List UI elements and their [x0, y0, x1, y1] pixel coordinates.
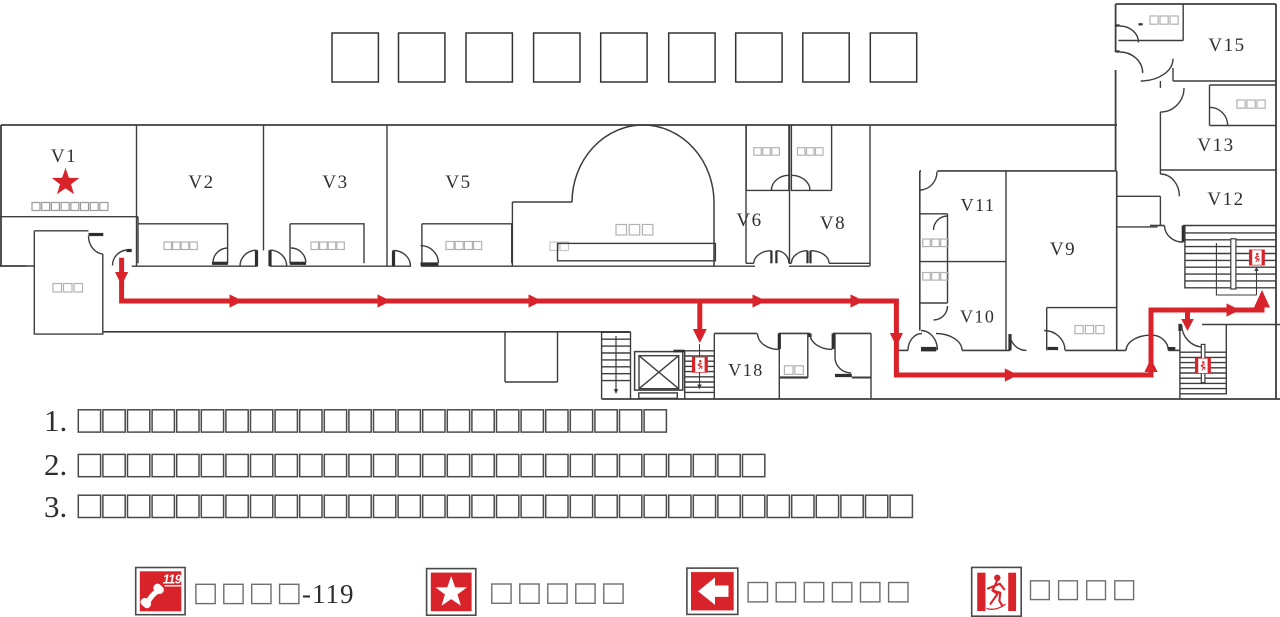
svg-text:-119: -119	[302, 579, 355, 609]
svg-text:V2: V2	[188, 172, 214, 193]
svg-text:3.: 3.	[44, 489, 67, 524]
svg-text:V15: V15	[1208, 35, 1245, 56]
svg-text:1.: 1.	[44, 403, 67, 438]
svg-text:V3: V3	[322, 172, 348, 193]
svg-text:V8: V8	[820, 213, 846, 234]
svg-text:119: 119	[163, 573, 182, 587]
svg-text:V10: V10	[960, 307, 996, 327]
svg-text:V11: V11	[961, 195, 996, 215]
svg-text:V13: V13	[1197, 135, 1234, 156]
svg-text:V6: V6	[736, 210, 762, 231]
svg-text:V18: V18	[728, 360, 764, 380]
svg-text:V5: V5	[445, 172, 471, 193]
svg-text:V9: V9	[1050, 239, 1076, 260]
svg-text:2.: 2.	[44, 447, 67, 482]
svg-text:V1: V1	[51, 146, 77, 167]
svg-text:V12: V12	[1207, 189, 1244, 210]
